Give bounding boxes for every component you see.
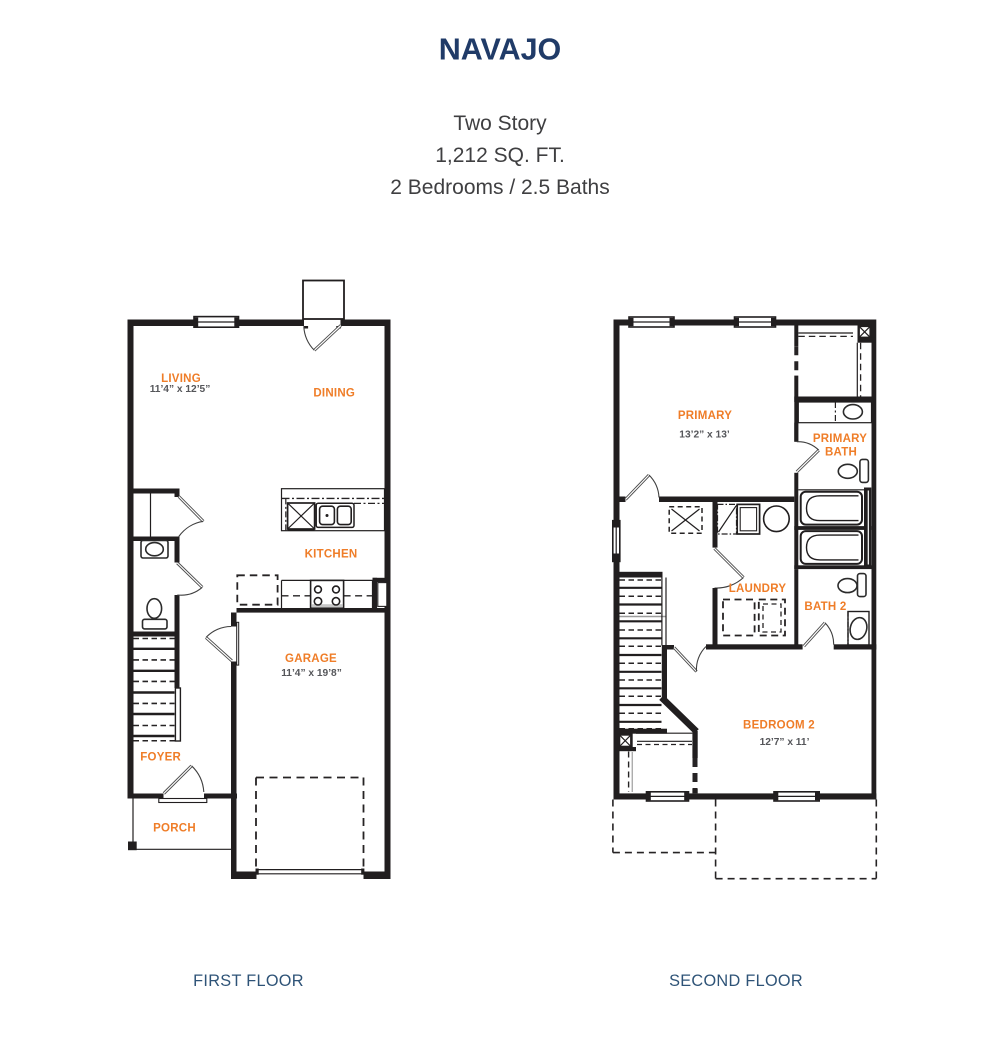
svg-text:BATH 2: BATH 2 <box>804 601 846 613</box>
svg-text:KITCHEN: KITCHEN <box>305 549 358 561</box>
svg-text:DINING: DINING <box>313 388 355 400</box>
svg-text:SECOND FLOOR: SECOND FLOOR <box>669 972 803 990</box>
svg-text:2 Bedrooms / 2.5 Baths: 2 Bedrooms / 2.5 Baths <box>390 176 609 199</box>
svg-text:PORCH: PORCH <box>153 823 196 835</box>
svg-text:12’7” x 11’: 12’7” x 11’ <box>760 737 810 748</box>
svg-text:FIRST FLOOR: FIRST FLOOR <box>193 972 304 990</box>
svg-text:NAVAJO: NAVAJO <box>439 33 562 67</box>
svg-text:13’2” x 13’: 13’2” x 13’ <box>679 430 730 441</box>
svg-text:11’4” x 12’5”: 11’4” x 12’5” <box>150 384 211 395</box>
svg-text:BEDROOM 2: BEDROOM 2 <box>743 720 815 732</box>
svg-text:GARAGE: GARAGE <box>285 653 337 665</box>
svg-text:LAUNDRY: LAUNDRY <box>729 583 787 595</box>
svg-text:FOYER: FOYER <box>140 751 181 763</box>
svg-text:Two Story: Two Story <box>453 112 547 135</box>
svg-text:PRIMARY: PRIMARY <box>813 433 867 445</box>
svg-text:1,212 SQ. FT.: 1,212 SQ. FT. <box>435 144 565 167</box>
svg-text:PRIMARY: PRIMARY <box>678 410 732 422</box>
svg-text:11’4” x 19’8”: 11’4” x 19’8” <box>281 668 342 679</box>
svg-text:BATH: BATH <box>825 447 857 459</box>
